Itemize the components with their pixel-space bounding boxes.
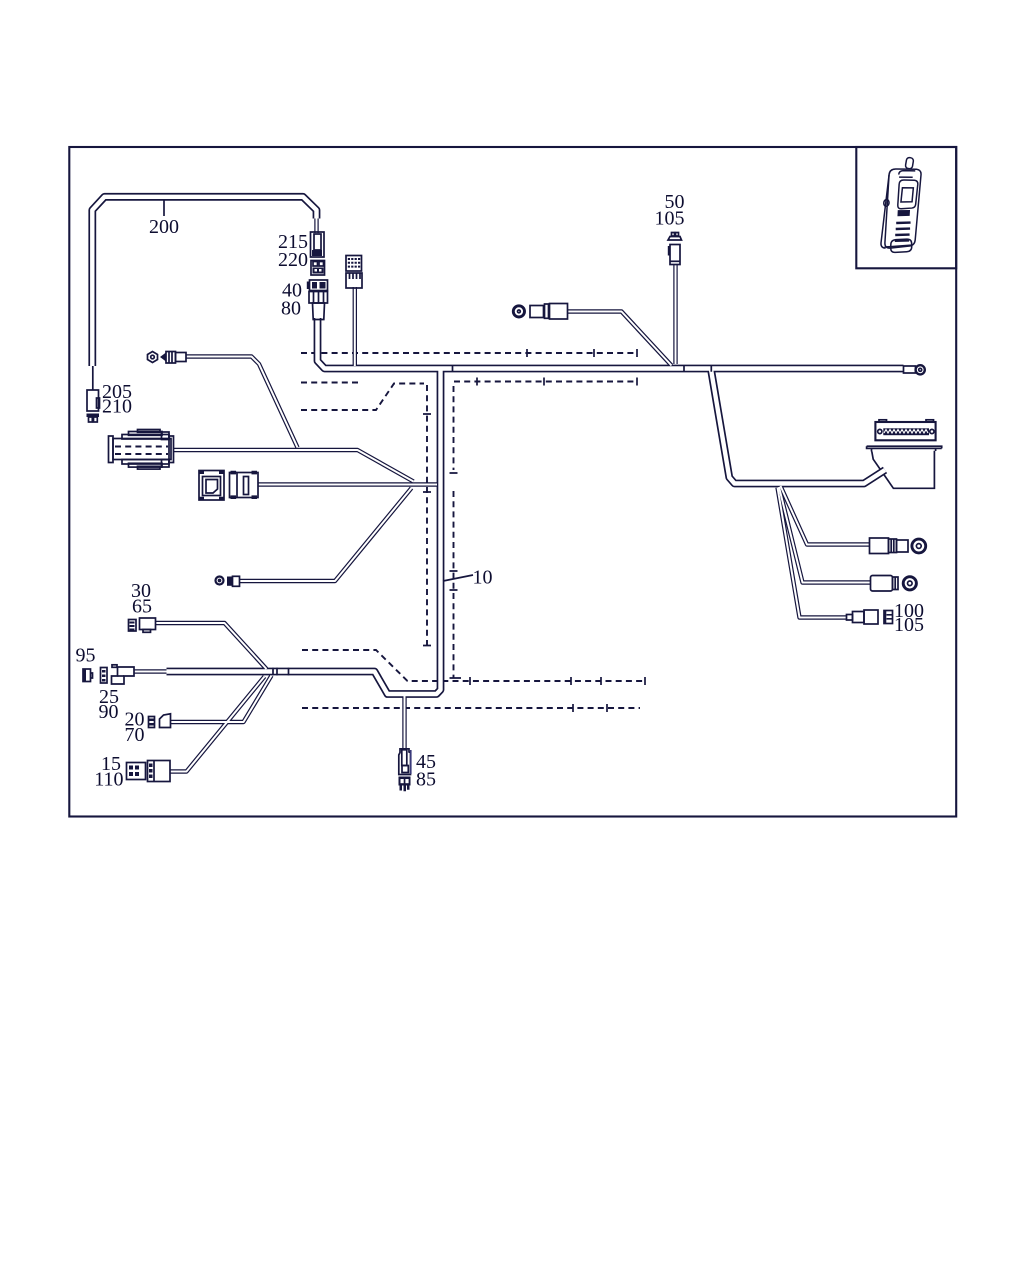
svg-text:110: 110 xyxy=(94,769,123,791)
svg-text:65: 65 xyxy=(132,596,152,618)
svg-text:80: 80 xyxy=(281,298,301,320)
svg-text:10: 10 xyxy=(473,567,493,589)
svg-text:200: 200 xyxy=(149,216,179,238)
svg-text:95: 95 xyxy=(76,645,96,667)
svg-text:210: 210 xyxy=(102,396,132,418)
svg-text:85: 85 xyxy=(416,769,436,791)
svg-text:220: 220 xyxy=(278,249,308,271)
svg-text:105: 105 xyxy=(655,208,685,230)
svg-text:105: 105 xyxy=(894,614,924,636)
svg-text:70: 70 xyxy=(125,724,145,746)
svg-text:90: 90 xyxy=(99,701,119,723)
